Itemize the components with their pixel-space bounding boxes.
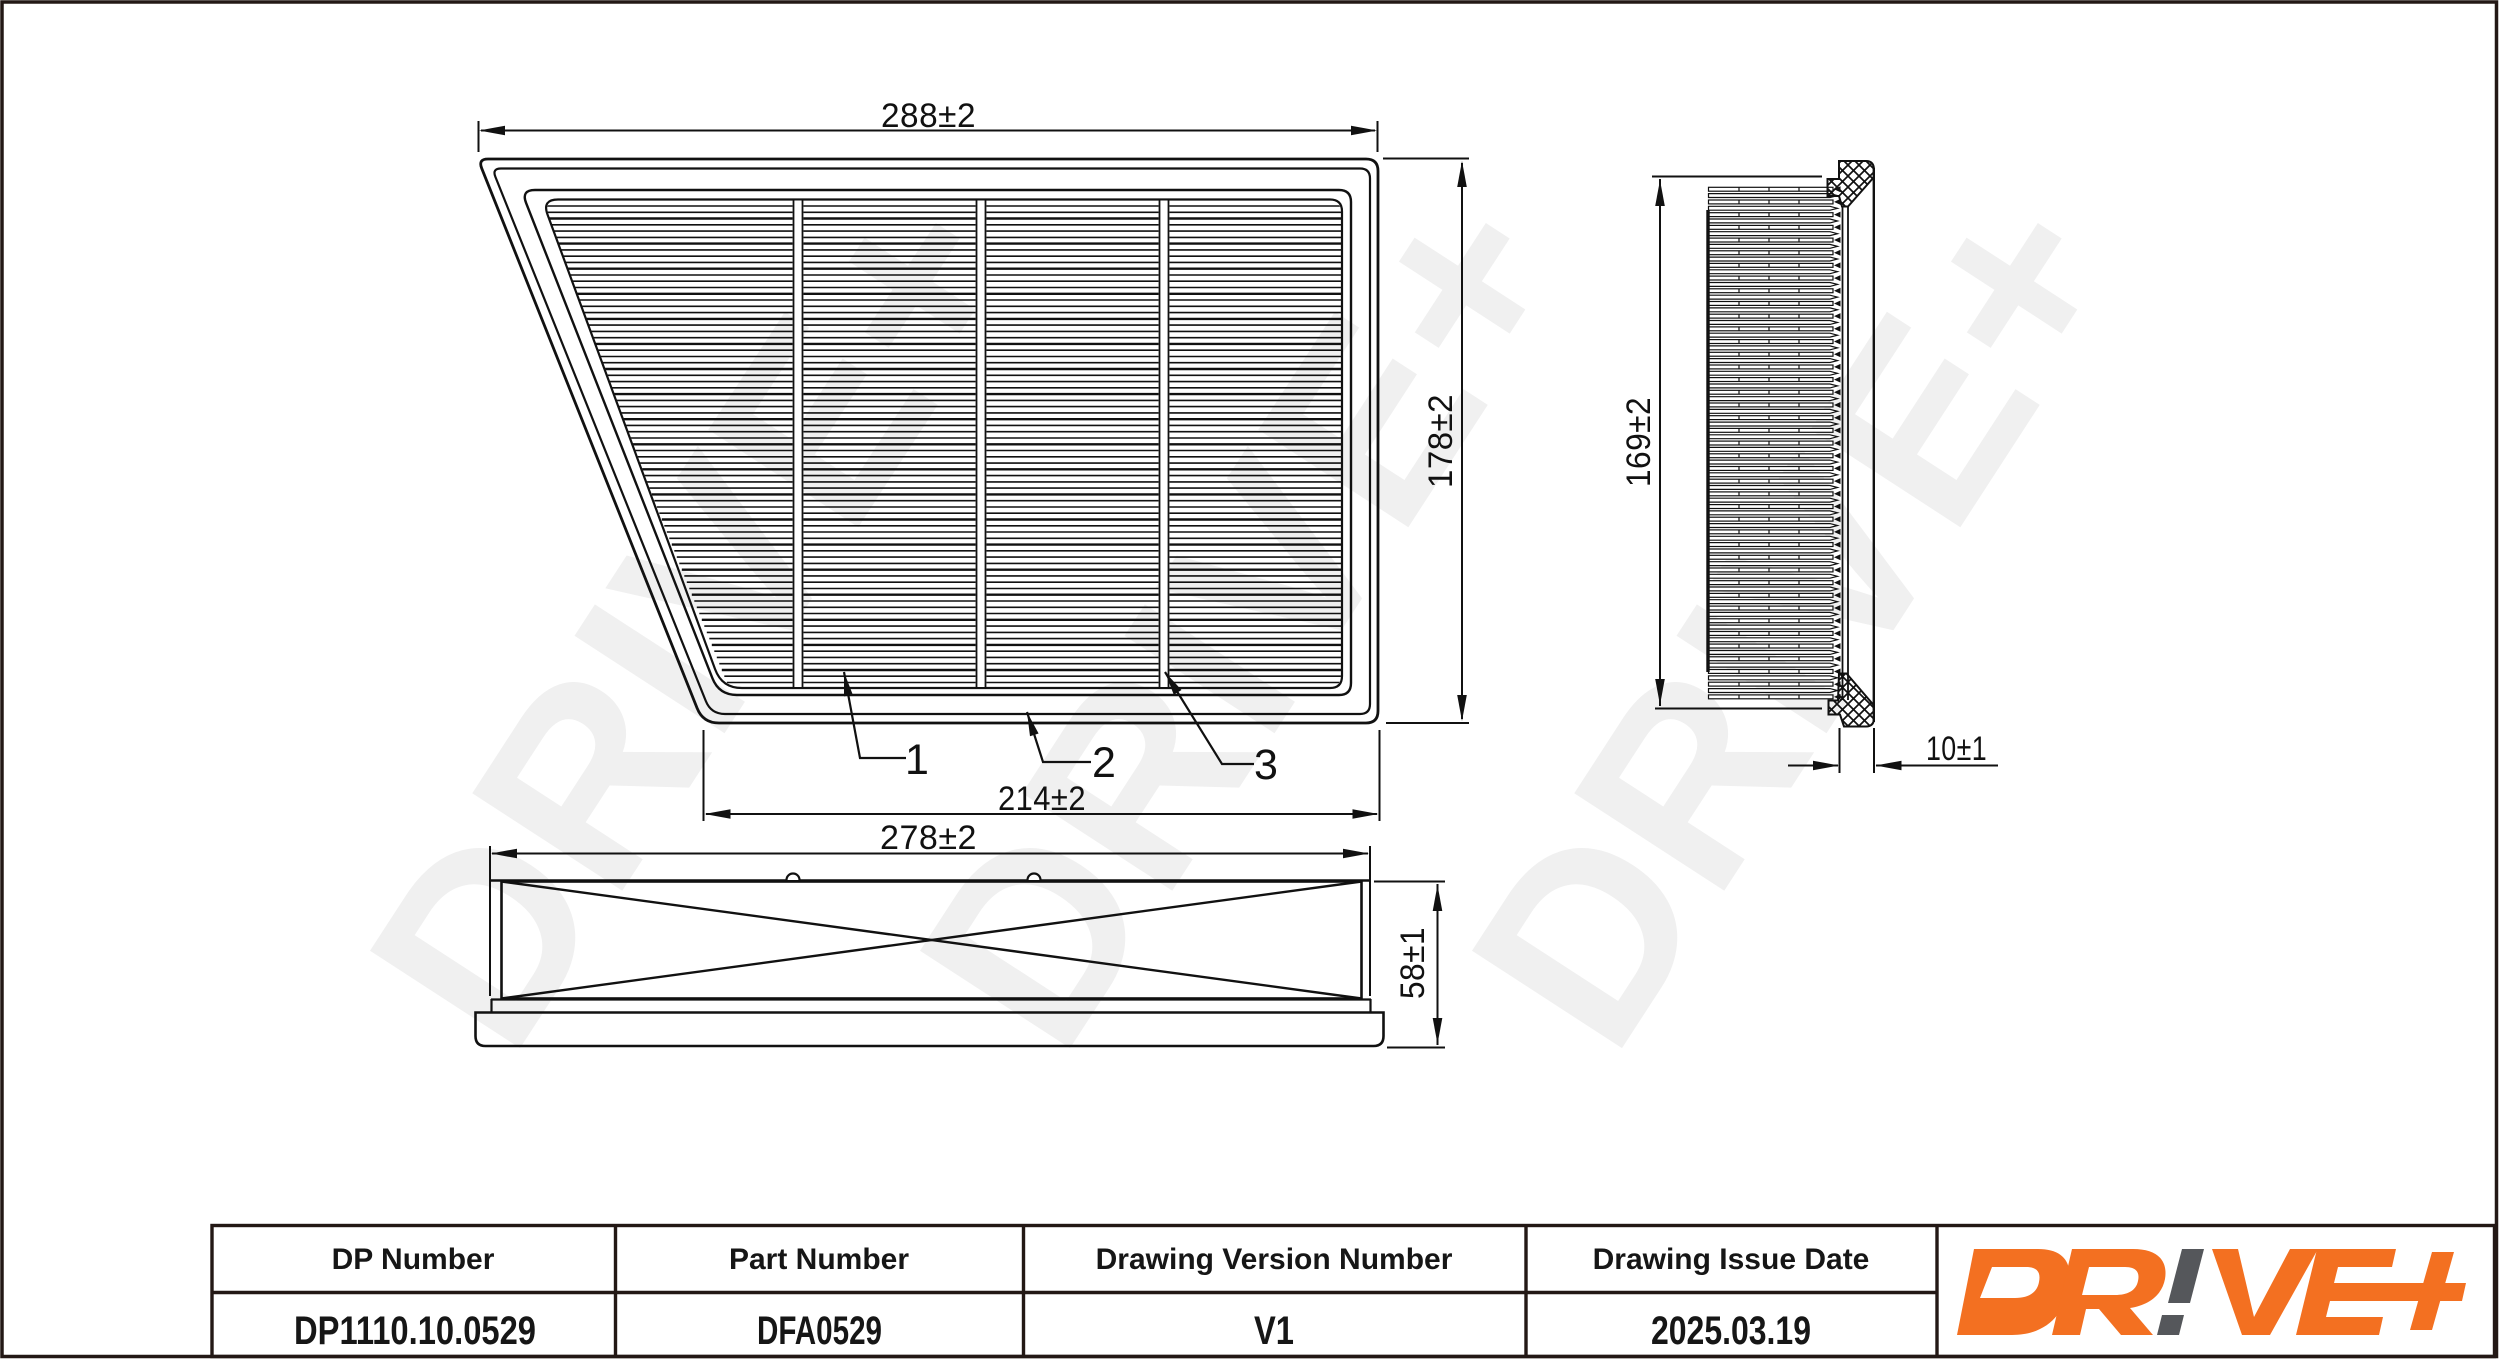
svg-text:Drawing Version Number: Drawing Version Number	[1096, 1243, 1453, 1276]
svg-text:10±1: 10±1	[1926, 730, 1987, 768]
svg-text:288±2: 288±2	[881, 97, 976, 135]
svg-text:1: 1	[905, 736, 929, 784]
svg-text:278±2: 278±2	[880, 819, 977, 857]
svg-text:Drawing Issue Date: Drawing Issue Date	[1593, 1243, 1870, 1276]
svg-text:Part Number: Part Number	[729, 1243, 909, 1276]
svg-text:2025.03.19: 2025.03.19	[1651, 1309, 1811, 1353]
svg-text:3: 3	[1254, 741, 1278, 789]
svg-text:DP1110.10.0529: DP1110.10.0529	[294, 1309, 536, 1353]
svg-text:DFA0529: DFA0529	[757, 1309, 882, 1353]
svg-text:214±2: 214±2	[998, 780, 1086, 818]
svg-text:2: 2	[1092, 739, 1116, 787]
svg-text:58±1: 58±1	[1394, 927, 1432, 999]
svg-text:178±2: 178±2	[1422, 394, 1460, 488]
svg-text:DP Number: DP Number	[332, 1243, 495, 1276]
svg-text:169±2: 169±2	[1620, 397, 1658, 487]
svg-text:V1: V1	[1254, 1309, 1294, 1353]
